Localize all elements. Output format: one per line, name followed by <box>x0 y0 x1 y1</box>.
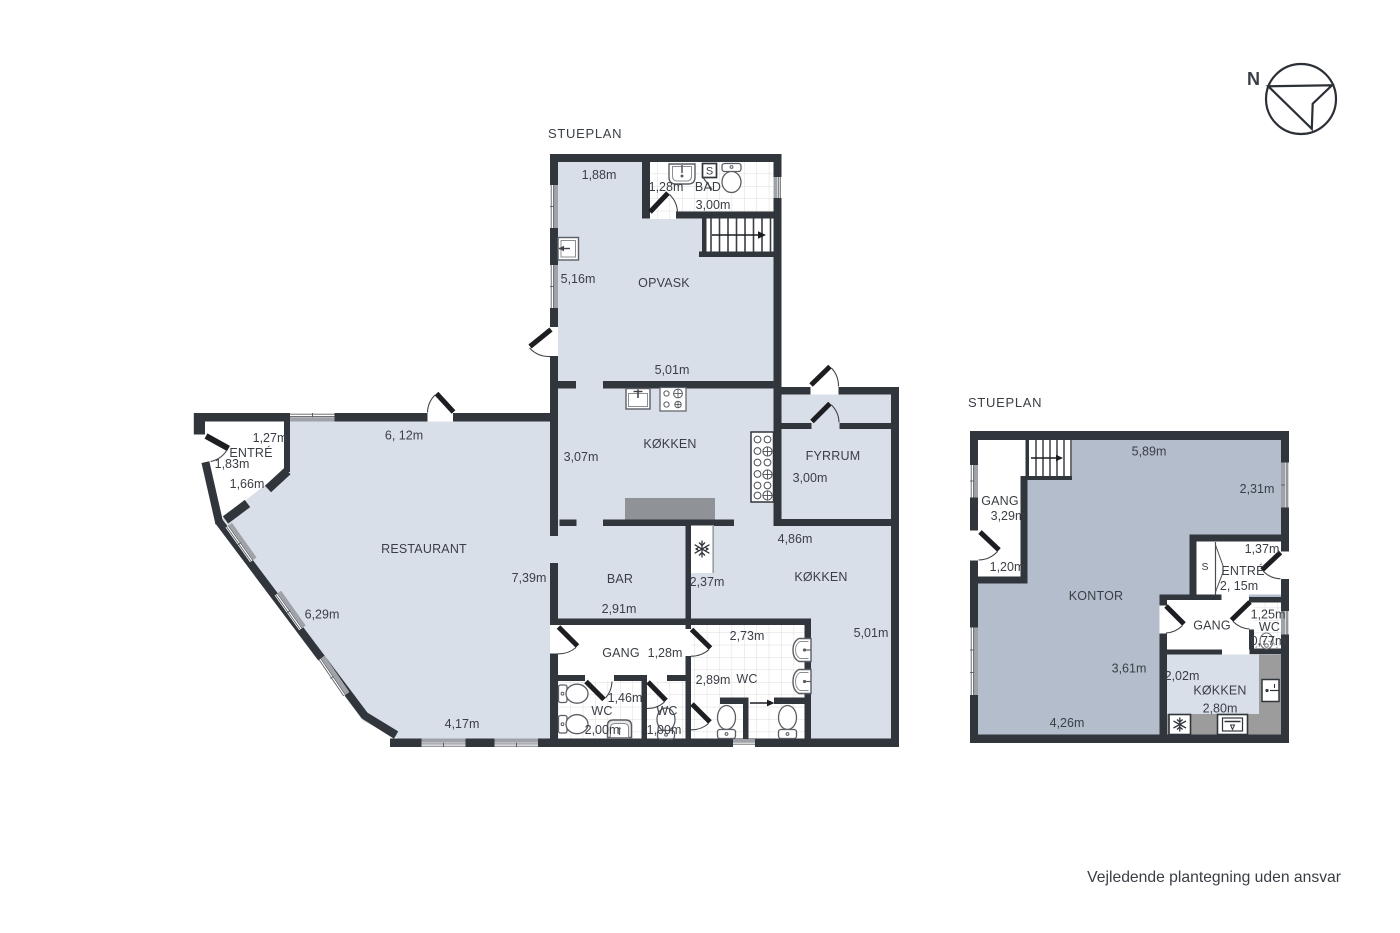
svg-text:2,37m: 2,37m <box>690 575 725 589</box>
svg-text:3,00m: 3,00m <box>793 471 828 485</box>
svg-text:1,83m: 1,83m <box>215 457 250 471</box>
svg-text:1,20m: 1,20m <box>990 560 1025 574</box>
svg-text:RESTAURANT: RESTAURANT <box>381 542 467 556</box>
svg-text:GANG: GANG <box>602 646 640 660</box>
svg-text:1,28m: 1,28m <box>649 180 684 194</box>
svg-text:5,89m: 5,89m <box>1132 445 1167 459</box>
svg-text:7,39m: 7,39m <box>512 571 547 585</box>
svg-text:0,77m: 0,77m <box>1251 634 1286 648</box>
svg-text:KØKKEN: KØKKEN <box>643 437 696 451</box>
svg-text:2,31m: 2,31m <box>1240 482 1275 496</box>
svg-text:3,61m: 3,61m <box>1112 662 1147 676</box>
svg-text:1,27m: 1,27m <box>253 431 288 445</box>
svg-text:S: S <box>706 166 713 178</box>
svg-text:2,80m: 2,80m <box>1203 702 1238 716</box>
svg-text:BAD: BAD <box>695 180 721 194</box>
svg-text:STUEPLAN: STUEPLAN <box>968 395 1042 410</box>
svg-text:2, 15m: 2, 15m <box>1220 579 1258 593</box>
svg-text:1,28m: 1,28m <box>648 646 683 660</box>
svg-text:1,37m: 1,37m <box>1245 542 1280 556</box>
svg-text:N: N <box>1247 69 1260 89</box>
svg-text:STUEPLAN: STUEPLAN <box>548 126 622 141</box>
svg-text:2,89m: 2,89m <box>696 673 731 687</box>
svg-text:2,73m: 2,73m <box>730 629 765 643</box>
svg-text:FYRRUM: FYRRUM <box>806 449 861 463</box>
svg-text:Vejledende plantegning uden an: Vejledende plantegning uden ansvar <box>1087 869 1341 886</box>
svg-text:BAR: BAR <box>607 572 633 586</box>
svg-text:5,01m: 5,01m <box>854 626 889 640</box>
svg-text:1,88m: 1,88m <box>582 168 617 182</box>
svg-text:OPVASK: OPVASK <box>638 276 690 290</box>
svg-text:2,00m: 2,00m <box>585 723 620 737</box>
svg-text:WC: WC <box>591 704 612 718</box>
svg-text:5,01m: 5,01m <box>655 363 690 377</box>
svg-text:6,29m: 6,29m <box>305 608 340 622</box>
svg-text:5,16m: 5,16m <box>561 272 596 286</box>
svg-text:GANG: GANG <box>981 494 1019 508</box>
svg-text:3,00m: 3,00m <box>696 198 731 212</box>
svg-text:WC: WC <box>1259 620 1280 634</box>
svg-text:3,07m: 3,07m <box>564 450 599 464</box>
svg-text:GANG: GANG <box>1193 619 1231 633</box>
svg-text:KØKKEN: KØKKEN <box>794 570 847 584</box>
svg-text:WC: WC <box>736 672 757 686</box>
svg-text:S: S <box>1201 561 1208 573</box>
svg-text:2,02m: 2,02m <box>1165 669 1200 683</box>
svg-text:3,29m: 3,29m <box>991 509 1026 523</box>
svg-text:WC: WC <box>656 704 677 718</box>
svg-text:ENTRÉ: ENTRÉ <box>1221 563 1264 578</box>
svg-text:6, 12m: 6, 12m <box>385 429 423 443</box>
svg-text:1,46m: 1,46m <box>608 691 643 705</box>
svg-text:1,66m: 1,66m <box>230 477 265 491</box>
svg-text:4,17m: 4,17m <box>445 717 480 731</box>
svg-text:2,91m: 2,91m <box>602 602 637 616</box>
svg-text:4,86m: 4,86m <box>778 532 813 546</box>
svg-text:1,00m: 1,00m <box>647 723 682 737</box>
svg-text:KONTOR: KONTOR <box>1069 589 1123 603</box>
svg-text:4,26m: 4,26m <box>1050 716 1085 730</box>
svg-text:KØKKEN: KØKKEN <box>1193 684 1246 698</box>
